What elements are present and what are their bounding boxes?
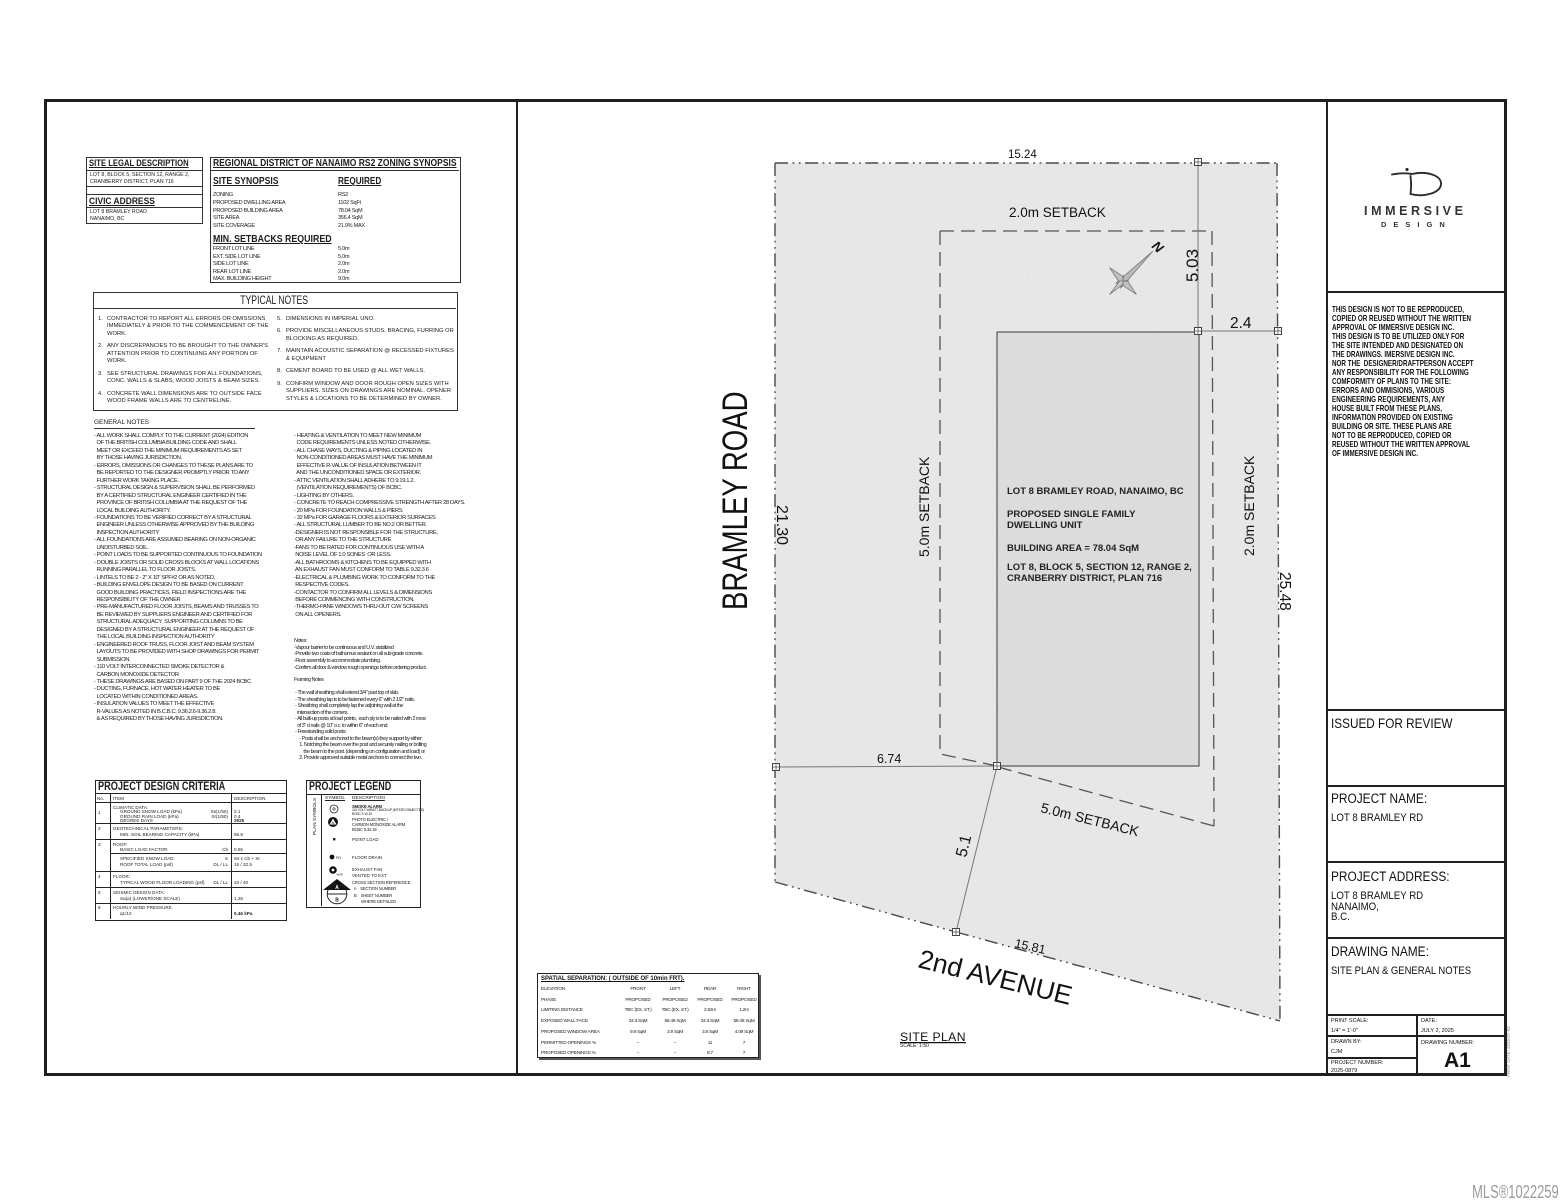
svg-text:SCALE: 1:50: SCALE: 1:50 (900, 1043, 929, 1049)
svg-text:FD: FD (336, 856, 341, 860)
svg-text:2.0m SETBACK: 2.0m SETBACK (1009, 205, 1106, 220)
svg-text:6.74: 6.74 (877, 752, 901, 766)
svg-text:A: A (335, 885, 339, 891)
svg-text:PROPOSED SINGLE FAMILY: PROPOSED SINGLE FAMILY (1007, 509, 1136, 520)
svg-text:BUILDING AREA = 78.04 SqM: BUILDING AREA = 78.04 SqM (1007, 543, 1139, 554)
svg-text:5.0m SETBACK: 5.0m SETBACK (916, 456, 932, 557)
svg-text:15.24: 15.24 (1008, 149, 1037, 161)
svg-text:2.4: 2.4 (1230, 315, 1252, 332)
svg-text:B: B (335, 898, 339, 904)
svg-text:CRANBERRY DISTRICT, PLAN 716: CRANBERRY DISTRICT, PLAN 716 (1007, 573, 1162, 584)
svg-text:vent: vent (337, 873, 343, 877)
svg-text:A: A (332, 820, 335, 825)
svg-text:SITE PLAN: SITE PLAN (900, 1030, 966, 1044)
svg-text:21.30: 21.30 (773, 505, 790, 545)
svg-text:BRAMLEY ROAD: BRAMLEY ROAD (715, 391, 755, 610)
svg-text:25.48: 25.48 (1276, 572, 1293, 611)
svg-text:2.0m SETBACK: 2.0m SETBACK (1241, 455, 1257, 556)
svg-text:5.03: 5.03 (1183, 249, 1202, 282)
svg-text:LOT 8, BLOCK 5, SECTION 12, RA: LOT 8, BLOCK 5, SECTION 12, RANGE 2, (1007, 562, 1192, 573)
svg-text:LOT 8 BRAMLEY ROAD, NANAIMO, B: LOT 8 BRAMLEY ROAD, NANAIMO, BC (1007, 486, 1184, 497)
svg-text:DWELLING UNIT: DWELLING UNIT (1007, 520, 1083, 531)
